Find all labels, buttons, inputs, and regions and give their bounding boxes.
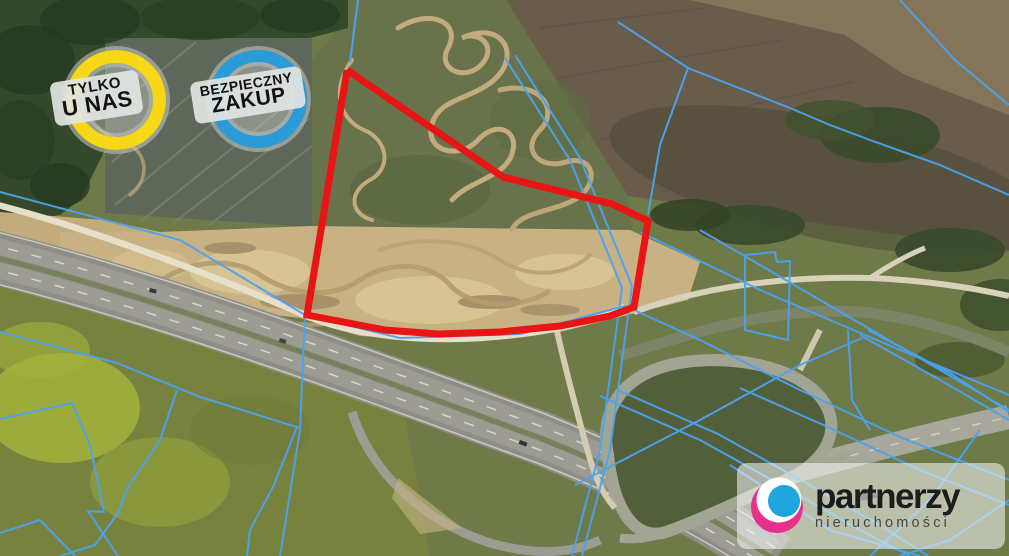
agency-logo-icon bbox=[750, 476, 808, 536]
agency-logo: partnerzy nieruchomości bbox=[737, 463, 1005, 549]
listing-image: TYLKO U NAS BEZPIECZNY ZAKUP partnerzy n… bbox=[0, 0, 1009, 556]
agency-logo-text: partnerzy nieruchomości bbox=[815, 481, 959, 532]
agency-logo-name: partnerzy bbox=[815, 481, 959, 513]
agency-logo-subtitle: nieruchomości bbox=[815, 515, 959, 531]
